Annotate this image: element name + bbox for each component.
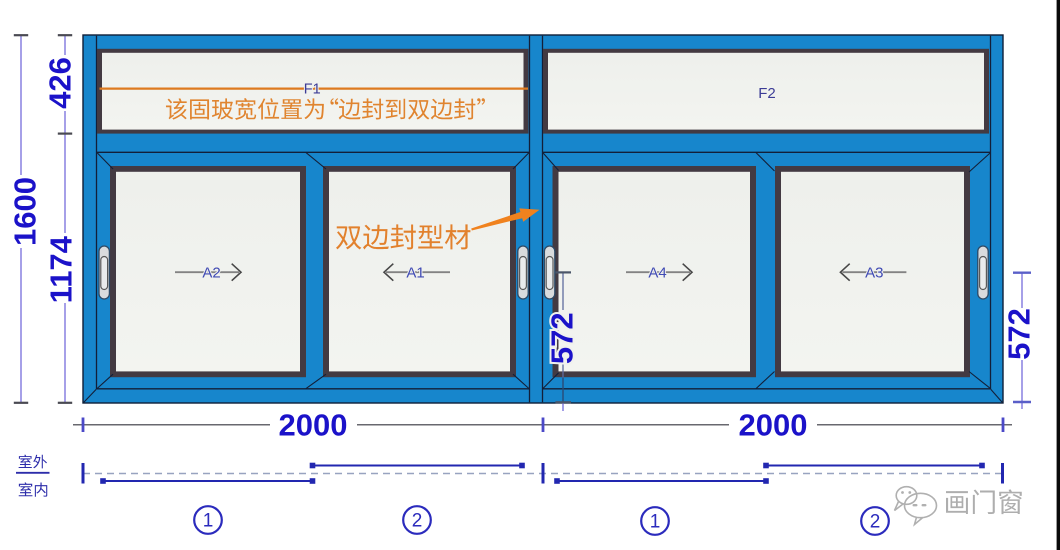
svg-text:A2: A2 [202,265,220,282]
svg-text:2000: 2000 [739,408,808,443]
svg-text:A1: A1 [406,265,424,282]
svg-text:1174: 1174 [43,235,78,303]
svg-text:572: 572 [1001,308,1036,360]
svg-text:2: 2 [412,511,423,532]
svg-text:2: 2 [870,512,881,533]
svg-text:1: 1 [650,512,661,533]
svg-text:426: 426 [42,57,77,109]
svg-text:1600: 1600 [7,177,42,246]
svg-text:A3: A3 [865,265,883,282]
svg-text:F1: F1 [304,81,321,97]
svg-text:A4: A4 [648,265,666,282]
svg-text:2000: 2000 [279,408,348,443]
svg-text:F2: F2 [758,85,776,102]
svg-text:572: 572 [544,312,579,364]
svg-text:1: 1 [203,511,214,532]
